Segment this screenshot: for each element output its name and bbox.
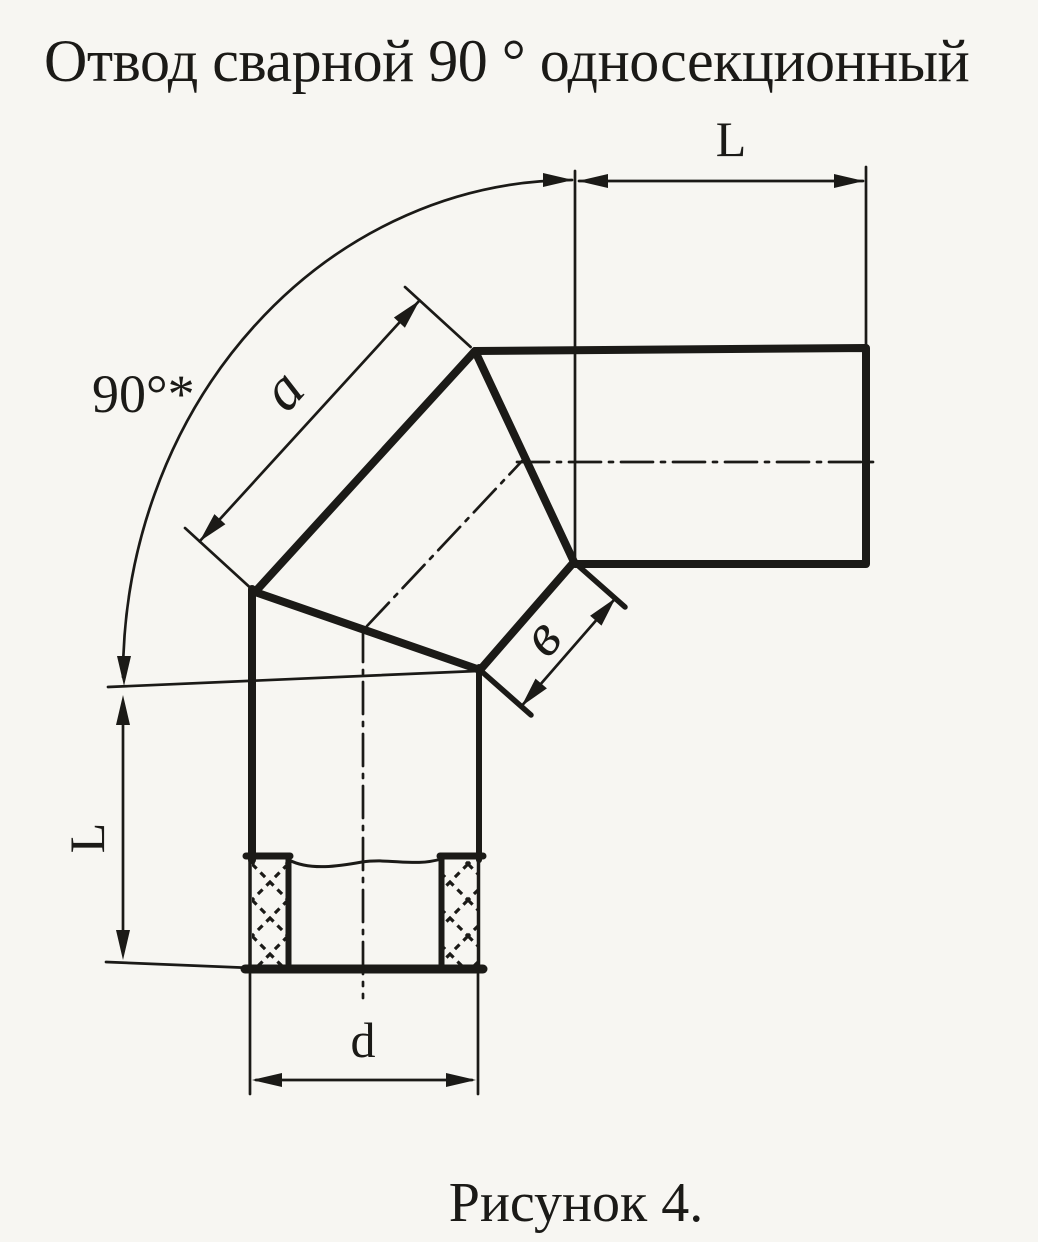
d-arrowhead-left: [252, 1073, 282, 1087]
d-arrowhead-right: [446, 1073, 476, 1087]
page-title: Отвод сварной 90 ° односекционный: [44, 28, 969, 94]
angle-side-line: [108, 671, 477, 687]
dim-label-L-top: L: [716, 111, 747, 167]
arc-arrowhead-bottom: [117, 656, 131, 686]
dim-label-d: d: [351, 1012, 376, 1068]
arrowhead-down: [116, 930, 130, 960]
arrowhead-right: [834, 174, 864, 188]
dim-label-a: a: [248, 356, 317, 422]
dim-label-v: в: [507, 605, 574, 668]
bottom-extension-line: [106, 962, 252, 968]
arrowhead-left: [578, 174, 608, 188]
upper-weld-seam: [475, 351, 574, 562]
a-extension-line-lower: [185, 528, 251, 588]
dim-diameter: d: [250, 974, 478, 1094]
arrowhead-up: [116, 695, 130, 725]
bore-break-line: [289, 859, 441, 867]
figure-caption: Рисунок 4.: [449, 1172, 703, 1234]
dim-gore-outer: a: [185, 287, 471, 588]
a-extension-line-upper: [405, 287, 471, 347]
dim-left-run: L: [59, 695, 252, 968]
dim-label-L-left: L: [59, 823, 115, 854]
elbow-outline: [252, 348, 866, 860]
horizontal-pipe-outline: [475, 348, 866, 564]
a-dim-line: [200, 300, 420, 541]
right-wall-hatch: [443, 857, 477, 967]
v-extension-line-lower: [480, 670, 531, 715]
lower-weld-seam: [255, 592, 480, 670]
v-extension-line-upper: [574, 562, 625, 607]
elbow-drawing: Отвод сварной 90 ° односекционный: [0, 0, 1038, 1242]
angle-label: 90°*: [92, 364, 195, 424]
angle-dim: 90°*: [92, 173, 573, 687]
arc-arrowhead-top: [543, 173, 573, 187]
diagonal-axis-centerline: [367, 461, 522, 626]
dim-top-run: L: [575, 111, 866, 561]
angle-arc: [123, 180, 572, 677]
left-wall-hatch: [252, 857, 287, 967]
